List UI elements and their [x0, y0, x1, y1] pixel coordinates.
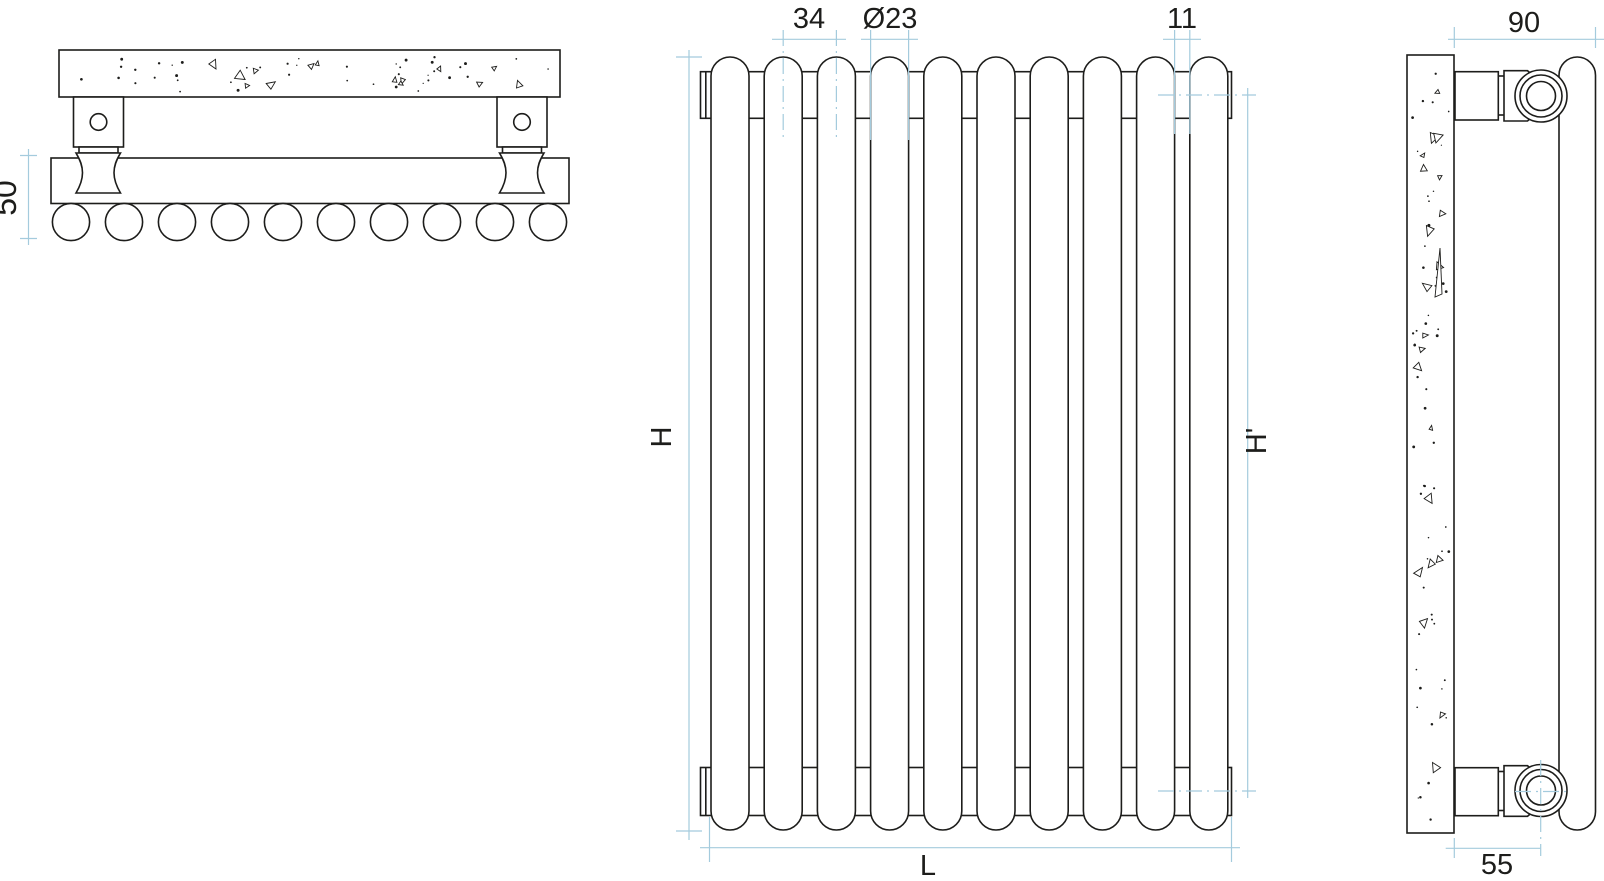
front-view: 34 Ø23 11 H H' [646, 3, 1273, 881]
concrete-dot [405, 59, 408, 62]
concrete-dot [433, 70, 435, 72]
top-tube-section [370, 203, 407, 240]
concrete-dot [1427, 558, 1429, 560]
concrete-dot [1422, 100, 1424, 102]
concrete-dot [237, 89, 240, 92]
concrete-dot [1412, 332, 1414, 334]
concrete-dot [1429, 818, 1431, 820]
front-tube [924, 57, 962, 830]
concrete-dot [1433, 623, 1435, 625]
concrete-dot [1416, 669, 1418, 671]
concrete-dot [1433, 191, 1434, 192]
concrete-dot [547, 68, 549, 70]
top-tube-section [211, 203, 248, 240]
top-tube-section [423, 203, 460, 240]
pipe-fitting-top-inner [1527, 82, 1556, 111]
concrete-dot [1431, 619, 1433, 621]
top-view-tube-sections [52, 203, 566, 240]
dim-label-Hprime: H' [1241, 428, 1273, 454]
concrete-dot [1445, 717, 1447, 719]
concrete-dot [1418, 633, 1420, 635]
dim-label-H: H [646, 427, 678, 448]
front-tube [764, 57, 802, 830]
concrete-dot [1411, 116, 1414, 119]
bottom-connection-assembly [1455, 765, 1567, 817]
top-tube-section [52, 203, 89, 240]
side-view-tube [1559, 57, 1596, 830]
concrete-dot [1442, 282, 1445, 285]
manifold-top-view [51, 158, 569, 204]
concrete-dot [1417, 151, 1418, 152]
concrete-dot [1420, 493, 1422, 495]
concrete-dot [230, 81, 232, 83]
concrete-dot [1447, 550, 1450, 553]
concrete-dot [1412, 445, 1415, 448]
concrete-dot [1413, 344, 1416, 347]
concrete-dot [431, 61, 434, 64]
top-tube-section [105, 203, 142, 240]
side-bracket-top [1455, 72, 1498, 120]
dim-label-34: 34 [793, 3, 825, 35]
concrete-dot [1419, 796, 1422, 799]
top-connection-assembly [1455, 70, 1567, 122]
wall-outline [1407, 55, 1454, 833]
concrete-dot [433, 56, 435, 58]
concrete-dot [346, 80, 348, 82]
concrete-dot [459, 66, 461, 68]
concrete-dot [399, 66, 401, 68]
top-tube-section [529, 203, 566, 240]
side-bracket-bottom [1455, 768, 1498, 816]
dim-label-90: 90 [1508, 7, 1540, 39]
ceiling-slab-outline [59, 50, 560, 97]
concrete-dot [1441, 550, 1443, 552]
front-tube [977, 57, 1015, 830]
concrete-dot [246, 67, 248, 69]
concrete-dot [179, 91, 181, 93]
front-tube [871, 57, 909, 830]
concrete-dot [1436, 334, 1439, 337]
concrete-dot [181, 61, 184, 64]
front-tube [817, 57, 855, 830]
concrete-dot [288, 74, 290, 76]
concrete-dot [396, 63, 397, 64]
concrete-dot [1448, 111, 1450, 113]
dim-label-d23: Ø23 [863, 3, 918, 35]
concrete-dot [1427, 782, 1430, 785]
concrete-dot [1431, 723, 1434, 726]
radiator-technical-drawing: 50 34 Ø23 [0, 0, 1604, 881]
top-tube-section [158, 203, 195, 240]
concrete-dot [1423, 587, 1425, 589]
concrete-dot [298, 58, 299, 59]
concrete-dot [395, 86, 398, 89]
concrete-dot [423, 83, 424, 84]
concrete-dot [1441, 145, 1442, 146]
concrete-dot [1433, 442, 1435, 444]
concrete-dot [120, 66, 122, 68]
top-tube-section [317, 203, 354, 240]
ceiling-slab [59, 50, 560, 97]
concrete-dot [1437, 328, 1439, 330]
wall-section [1407, 55, 1454, 833]
concrete-dot [346, 66, 348, 68]
concrete-dot [417, 90, 419, 92]
front-tube [1083, 57, 1121, 830]
concrete-dot [1424, 322, 1427, 325]
side-view: 90 55 [1407, 7, 1604, 881]
front-tube [1030, 57, 1068, 830]
concrete-dot [172, 65, 173, 66]
concrete-dot [1445, 290, 1448, 293]
top-tube-section [476, 203, 513, 240]
concrete-dot [1416, 376, 1418, 378]
concrete-dot [1433, 487, 1435, 489]
concrete-dot [427, 79, 429, 81]
concrete-dot [1431, 614, 1433, 616]
concrete-dot [117, 77, 120, 80]
concrete-dot [134, 69, 136, 71]
concrete-dot [120, 58, 123, 61]
concrete-dot [1424, 407, 1427, 410]
concrete-dot [1432, 101, 1434, 103]
dim-wall-depth-90: 90 [1448, 7, 1604, 48]
dim-label-11: 11 [1167, 3, 1197, 35]
concrete-dot [177, 79, 179, 81]
dim-label-50: 50 [0, 180, 23, 216]
concrete-dot [287, 63, 289, 65]
concrete-dot [1428, 537, 1430, 539]
dim-depth-50: 50 [0, 149, 37, 245]
concrete-dot [515, 58, 517, 60]
concrete-dot [398, 73, 400, 75]
concrete-dot [80, 78, 83, 81]
concrete-dot [1416, 706, 1418, 708]
top-view: 50 [0, 50, 569, 245]
top-tube-section [264, 203, 301, 240]
concrete-dot [134, 82, 136, 84]
concrete-dot [1428, 200, 1430, 202]
concrete-dot [448, 76, 451, 79]
front-tube [1190, 57, 1228, 830]
front-view-tubes [711, 57, 1228, 830]
dim-height-H: H [646, 50, 702, 840]
concrete-dot [1444, 679, 1446, 681]
concrete-dot [259, 66, 261, 68]
concrete-dot [1424, 245, 1426, 247]
concrete-dot [1445, 526, 1447, 528]
concrete-dot [427, 75, 428, 76]
concrete-dot [175, 74, 178, 77]
concrete-dot [296, 65, 297, 66]
concrete-dot [1425, 388, 1427, 390]
concrete-dot [1419, 687, 1422, 690]
concrete-dot [1441, 688, 1443, 690]
concrete-dot [1423, 485, 1425, 487]
concrete-dot [158, 62, 160, 64]
concrete-dot [1428, 315, 1430, 317]
concrete-dot [1422, 266, 1425, 269]
front-tube [1137, 57, 1175, 830]
front-tube [711, 57, 749, 830]
concrete-dot [1418, 797, 1419, 798]
concrete-dot [1416, 330, 1418, 332]
concrete-dot [1427, 195, 1429, 197]
concrete-dot [467, 76, 469, 78]
dim-label-55: 55 [1481, 849, 1513, 881]
dim-label-L: L [920, 850, 936, 881]
concrete-dot [154, 77, 156, 79]
concrete-dot [373, 83, 375, 85]
concrete-dot [464, 62, 467, 65]
concrete-dot [1435, 73, 1437, 75]
